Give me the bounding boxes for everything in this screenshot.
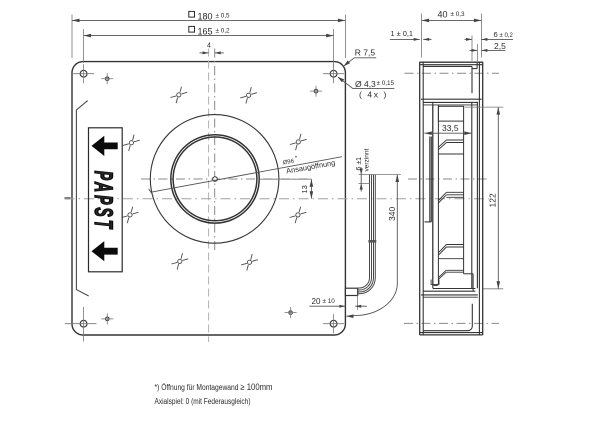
svg-text:± 10: ± 10 [323,298,336,305]
svg-text:122: 122 [488,193,498,207]
svg-text:± 0,3: ± 0,3 [451,11,465,18]
svg-text:20: 20 [312,297,321,306]
svg-text:*: * [295,155,299,161]
svg-text:40: 40 [438,10,448,20]
svg-text:13: 13 [300,185,309,193]
svg-text:Axialspiel: 0 (mit Federausgle: Axialspiel: 0 (mit Federausgleich) [155,397,251,406]
svg-text:165: 165 [198,26,213,36]
svg-text:Ø 4,3: Ø 4,3 [355,79,376,89]
svg-text:( 4x ): ( 4x ) [359,89,388,99]
svg-text:± 0,2: ± 0,2 [500,33,514,39]
svg-text:6: 6 [494,30,498,39]
svg-text:2,5: 2,5 [494,41,506,51]
svg-text:verzinnt: verzinnt [363,149,370,172]
svg-text:1 ± 0,1: 1 ± 0,1 [391,29,414,38]
svg-text:33,5: 33,5 [442,123,459,133]
svg-text:± 0,15: ± 0,15 [377,80,395,87]
svg-text:PAPST: PAPST [89,171,116,230]
svg-text:6 ±1: 6 ±1 [356,157,363,171]
svg-text:340: 340 [387,207,397,221]
svg-text:± 0,2: ± 0,2 [216,28,230,35]
svg-text:180: 180 [198,11,213,21]
svg-text:4: 4 [207,43,211,50]
svg-text:± 0,5: ± 0,5 [216,13,230,20]
svg-text:R 7,5: R 7,5 [355,48,376,58]
svg-text:*) Öffnung für Montagewand ≥ 1: *) Öffnung für Montagewand ≥ 100mm [155,382,273,392]
